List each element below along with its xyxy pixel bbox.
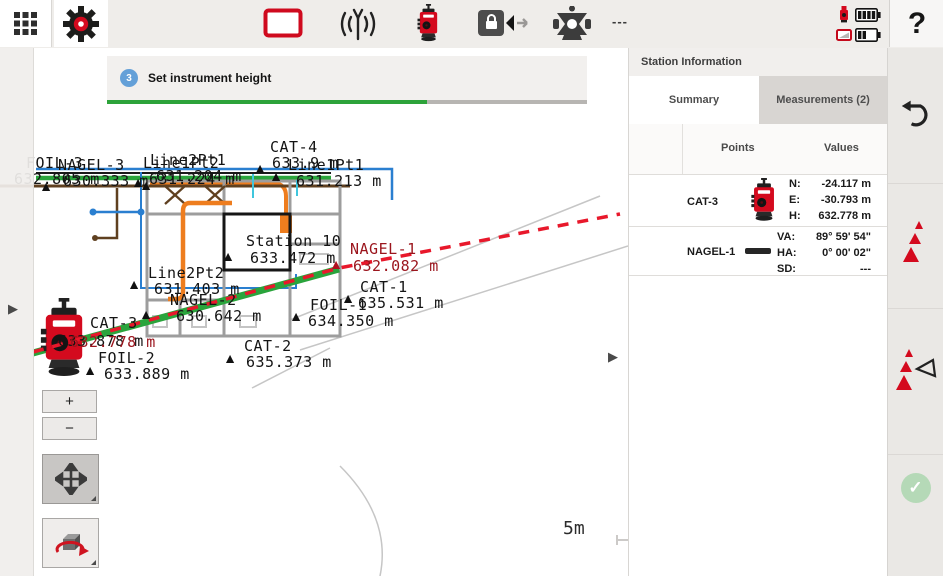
back-button[interactable] [888, 98, 943, 130]
panel-title: Station Information [641, 56, 742, 68]
pan-arrows-icon [55, 463, 87, 495]
station-information-panel: Station Information Summary Measurements… [628, 48, 887, 576]
map-point-name: Line2Pt2 [148, 266, 224, 281]
map-point-name: Line1Pt1 [288, 158, 364, 173]
sidebar-divider [888, 454, 943, 455]
map-point-elevation: 635.531 m [358, 296, 444, 311]
value-key: VA: [777, 231, 795, 247]
tab-summary[interactable]: Summary [629, 76, 759, 124]
prism-target-button[interactable] [552, 6, 592, 42]
map-point-elevation: 633.889 m [104, 367, 190, 382]
red-triangles-icon [899, 220, 933, 264]
level-staff-icon [745, 248, 771, 254]
column-points: Points [721, 142, 755, 154]
check-icon: ✓ [901, 473, 931, 503]
map-point-elevation: 631.204 m [156, 169, 242, 184]
instrument-battery-icon [855, 8, 881, 22]
tab-measurements[interactable]: Measurements (2) [759, 76, 887, 124]
radio-connection-button[interactable] [335, 7, 381, 41]
map-point-name: CAT-3 [90, 316, 138, 331]
display-icon [263, 8, 303, 38]
value-val: --- [860, 263, 871, 279]
pan-tool-button[interactable] [42, 454, 99, 504]
measurements-table-header: Points Values [629, 124, 887, 175]
measurement-row-nagel1[interactable]: NAGEL-1 VA:89° 59' 54" HA:0° 00' 02" SD:… [629, 227, 887, 276]
display-screen-button[interactable] [263, 8, 303, 38]
total-station-icon [746, 178, 782, 224]
apps-menu-button[interactable] [0, 0, 52, 47]
prism-icon [552, 6, 592, 42]
panel-title-bar: Station Information [629, 48, 887, 76]
value-val: 89° 59' 54" [816, 231, 871, 247]
map-point-name: Line2Pt1 [150, 153, 226, 168]
confirm-button[interactable]: ✓ [888, 473, 943, 503]
instrument-mini-icon [838, 6, 850, 24]
rotate-cube-icon [52, 524, 90, 562]
map-canvas[interactable]: 3 Set instrument height [0, 48, 628, 576]
value-val: 0° 00' 02" [822, 247, 871, 263]
map-point-marker-CAT-2[interactable]: ▲ [222, 351, 238, 365]
prism-status-text: --- [612, 14, 628, 29]
left-panel-strip: ▶ [0, 48, 34, 576]
total-station-icon [415, 4, 442, 44]
map-point-elevation: 632.082 m [353, 259, 439, 274]
tool-options-corner [91, 560, 96, 565]
battery-status[interactable] [836, 4, 886, 44]
map-point-name: NAGEL-3 [58, 158, 125, 173]
map-point-elevation: 634.350 m [308, 314, 394, 329]
top-toolbar: --- ? [0, 0, 943, 49]
action-sidebar: ✓ [887, 48, 943, 576]
map-point-marker-FOIL-1[interactable]: ▲ [288, 309, 304, 323]
grid-menu-icon [14, 12, 37, 35]
map-point-name: NAGEL-1 [350, 242, 417, 257]
map-point-name: FOIL-1 [310, 298, 367, 313]
map-point-marker-Line2Pt1[interactable]: ▲ [130, 175, 146, 189]
map-point-marker-Station 10[interactable]: ▲ [220, 249, 236, 263]
column-values: Values [824, 142, 859, 154]
settings-button[interactable] [54, 0, 108, 47]
help-button[interactable]: ? [889, 0, 943, 47]
map-point-marker-NAGEL-2[interactable]: ▲ [138, 307, 154, 321]
expand-right-panel-arrow[interactable]: ▶ [608, 350, 618, 363]
point-name: NAGEL-1 [687, 246, 735, 258]
antenna-icon [335, 7, 381, 41]
map-scale-label: 5m [563, 518, 585, 539]
display-battery-icon [855, 28, 881, 42]
map-point-name: FOIL-2 [98, 351, 155, 366]
map-point-name: CAT-4 [270, 140, 318, 155]
map-point-elevation: 630.642 m [176, 309, 262, 324]
sidebar-divider [888, 183, 943, 184]
zoom-in-button[interactable]: + [42, 390, 97, 413]
column-separator [682, 124, 683, 174]
triangles-with-pointer-icon [895, 348, 937, 392]
gear-icon [62, 5, 100, 43]
map-point-elevation: 632.778 m [70, 335, 156, 350]
value-val: -30.793 m [821, 194, 871, 210]
value-val: 632.778 m [818, 210, 871, 226]
map-point-marker-NAGEL-1[interactable]: ▲ [328, 257, 344, 271]
map-point-marker-Line1Pt1[interactable]: ▲ [268, 169, 284, 183]
map-point-marker-NAGEL-3[interactable]: ▲ [38, 179, 54, 193]
value-key: E: [789, 194, 800, 210]
map-point-marker-Line2Pt2[interactable]: ▲ [126, 277, 142, 291]
map-point-marker-CAT-4[interactable]: ▲ [252, 161, 268, 175]
value-key: HA: [777, 247, 797, 263]
map-point-marker-FOIL-2[interactable]: ▲ [82, 363, 98, 377]
expand-left-panel-arrow[interactable]: ▶ [8, 302, 18, 315]
map-point-name: CAT-1 [360, 280, 408, 295]
sidebar-divider [888, 308, 943, 309]
map-point-name: CAT-2 [244, 339, 292, 354]
map-point-elevation: 631.213 m [296, 174, 382, 189]
measure-target-options-button[interactable] [888, 348, 943, 392]
map-point-name: Station 10 [246, 234, 341, 249]
map-point-elevation: 635.373 m [246, 355, 332, 370]
measurement-row-cat3[interactable]: CAT-3 N:-24.117 m E:-30.793 m H:632.778 … [629, 174, 887, 227]
display-mini-icon [836, 29, 852, 41]
instrument-button[interactable] [415, 4, 442, 44]
value-val: -24.117 m [821, 178, 871, 194]
undo-arrow-icon [900, 98, 932, 130]
map-point-elevation: 633.472 m [250, 251, 336, 266]
camera-lock-button[interactable] [478, 9, 532, 37]
tool-options-corner [91, 496, 96, 501]
measure-points-button[interactable] [888, 220, 943, 264]
point-name: CAT-3 [687, 196, 718, 208]
camera-lock-icon [478, 9, 532, 37]
value-key: SD: [777, 263, 796, 279]
value-key: N: [789, 178, 801, 194]
map-point-name: NAGEL-2 [170, 293, 237, 308]
rotate-3d-button[interactable] [42, 518, 99, 568]
value-key: H: [789, 210, 801, 226]
zoom-out-button[interactable]: − [42, 417, 97, 440]
